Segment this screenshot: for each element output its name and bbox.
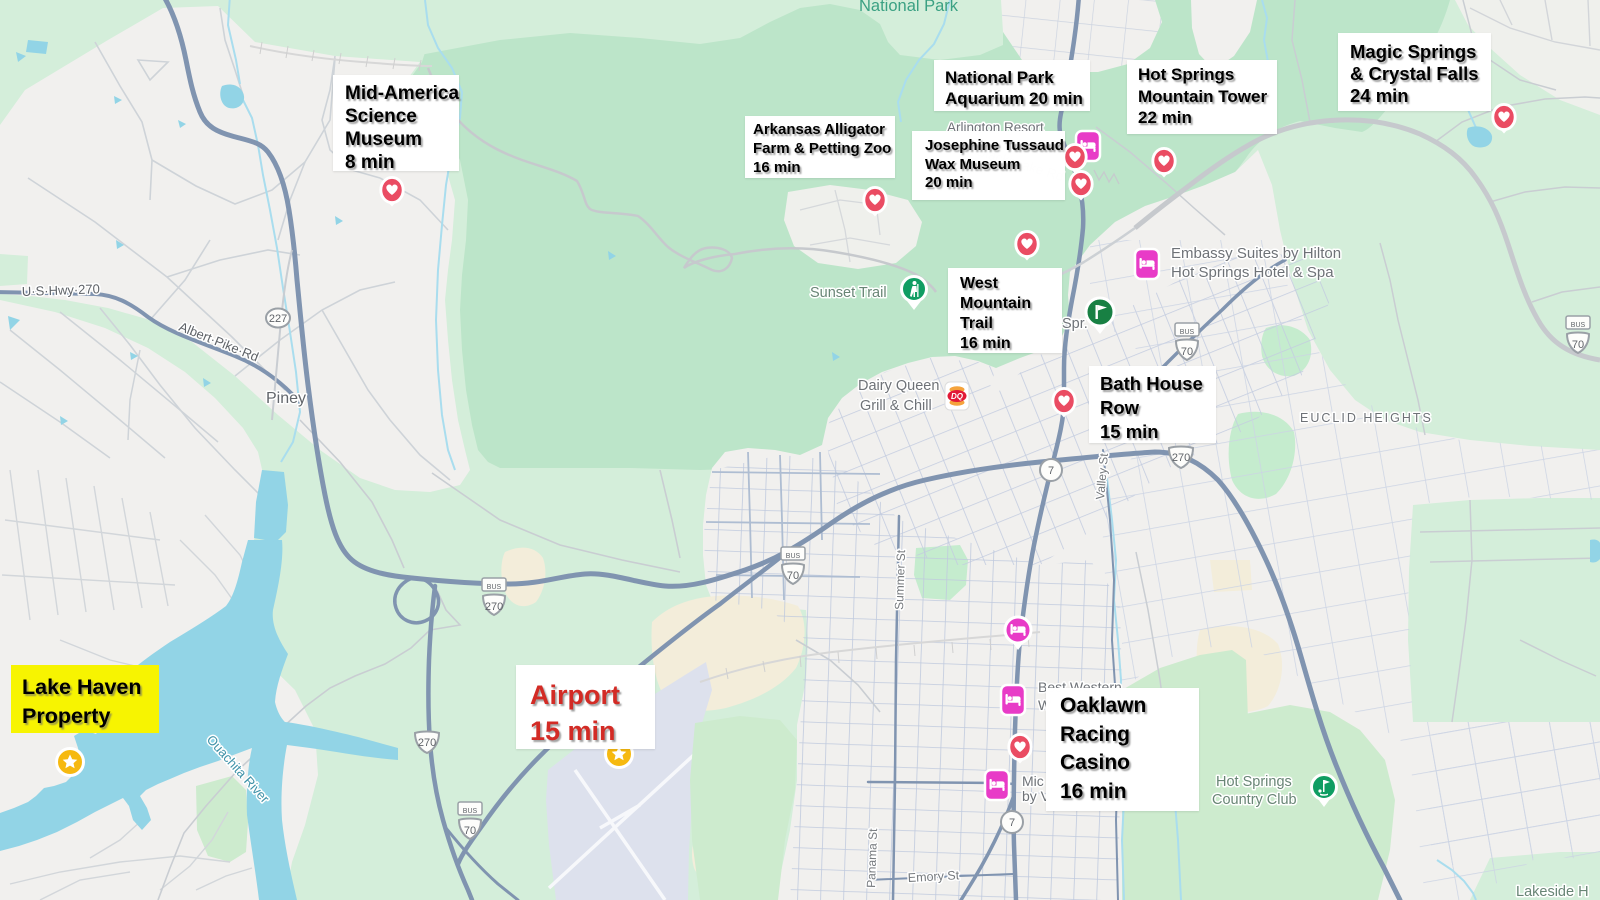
svg-text:BUS: BUS	[463, 808, 478, 815]
svg-text:Dairy Queen: Dairy Queen	[858, 378, 939, 394]
svg-text:70: 70	[787, 570, 799, 582]
svg-text:Mic: Mic	[1022, 773, 1044, 789]
svg-text:Emory St: Emory St	[907, 868, 960, 885]
svg-text:EUCLID HEIGHTS: EUCLID HEIGHTS	[1300, 411, 1433, 425]
svg-text:Sunset Trail: Sunset Trail	[810, 285, 887, 301]
svg-text:Summer St: Summer St	[892, 549, 908, 610]
svg-text:BUS: BUS	[1180, 329, 1195, 336]
svg-text:Lakeside H: Lakeside H	[1516, 884, 1589, 900]
svg-text:270: 270	[418, 737, 436, 749]
svg-text:70: 70	[1572, 339, 1584, 351]
svg-text:7: 7	[1009, 817, 1015, 829]
svg-text:70: 70	[464, 825, 476, 837]
svg-text:Spr.: Spr.	[1062, 316, 1088, 332]
svg-text:U·S·Hwy·270: U·S·Hwy·270	[22, 281, 100, 299]
svg-text:270: 270	[1172, 452, 1190, 464]
svg-text:227: 227	[269, 313, 287, 325]
svg-text:Grill & Chill: Grill & Chill	[860, 398, 932, 414]
svg-text:Panama St: Panama St	[864, 828, 880, 888]
svg-text:7: 7	[1048, 465, 1054, 477]
svg-text:BUS: BUS	[1571, 322, 1586, 329]
svg-text:Piney: Piney	[266, 390, 306, 407]
svg-text:Country Club: Country Club	[1212, 792, 1297, 808]
svg-text:DQ: DQ	[951, 392, 964, 401]
svg-text:70: 70	[1181, 346, 1193, 358]
svg-text:National Park: National Park	[859, 0, 959, 15]
svg-text:Hot Springs: Hot Springs	[1216, 774, 1292, 790]
svg-text:Hot Springs Hotel & Spa: Hot Springs Hotel & Spa	[1171, 264, 1334, 281]
svg-text:Embassy Suites by Hilton: Embassy Suites by Hilton	[1171, 245, 1341, 262]
svg-text:BUS: BUS	[786, 553, 801, 560]
svg-text:BUS: BUS	[487, 584, 502, 591]
svg-text:270: 270	[485, 601, 503, 613]
